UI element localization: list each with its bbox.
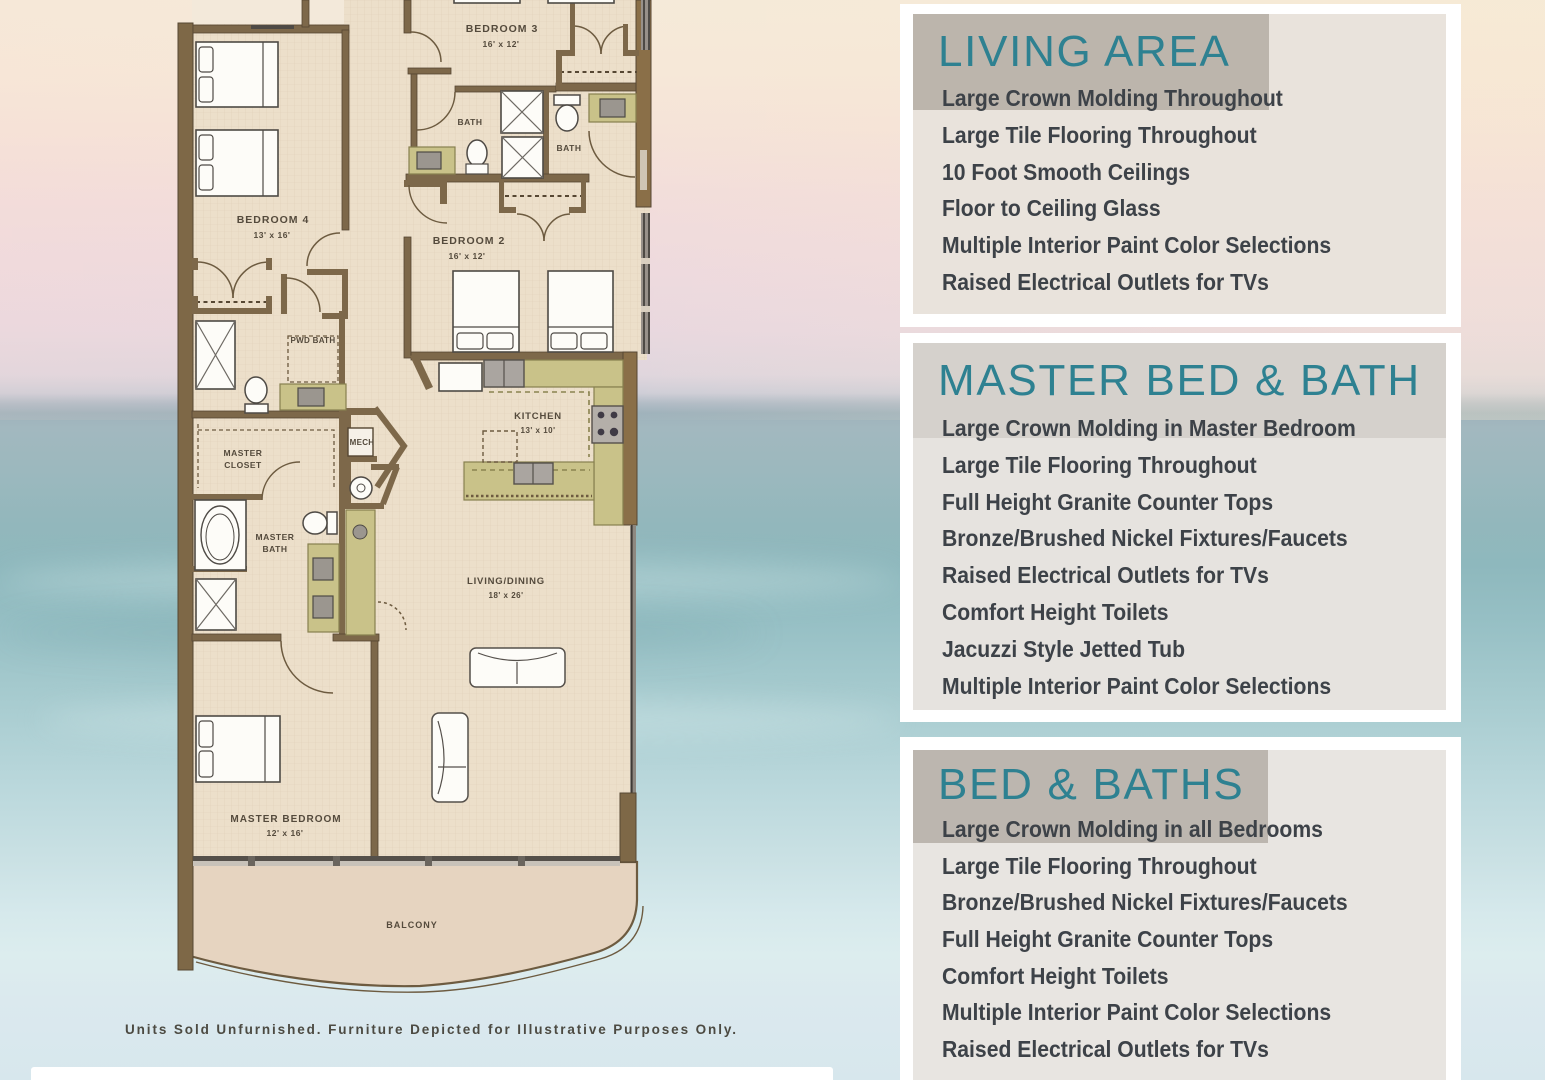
svg-text:18' x 26': 18' x 26' [489,591,524,600]
svg-text:LIVING/DINING: LIVING/DINING [467,576,545,587]
svg-text:13' x 16': 13' x 16' [254,230,291,240]
svg-text:13' x 10': 13' x 10' [521,426,556,435]
svg-text:MASTER BEDROOM: MASTER BEDROOM [230,814,341,825]
svg-text:MECH: MECH [350,438,375,447]
svg-text:16' x 12': 16' x 12' [449,251,486,261]
svg-text:BATH: BATH [557,143,582,153]
svg-text:BALCONY: BALCONY [386,920,438,930]
svg-text:BEDROOM 2: BEDROOM 2 [433,235,506,247]
svg-text:KITCHEN: KITCHEN [514,411,562,422]
svg-text:MASTER: MASTER [256,532,295,542]
svg-text:BEDROOM 3: BEDROOM 3 [466,23,539,35]
svg-text:BATH: BATH [263,544,288,554]
svg-text:BEDROOM 4: BEDROOM 4 [237,214,310,226]
svg-text:BATH: BATH [458,117,483,127]
svg-text:CLOSET: CLOSET [224,460,262,470]
svg-text:PWD BATH: PWD BATH [291,336,336,345]
svg-text:MASTER: MASTER [224,448,263,458]
svg-text:12' x 16': 12' x 16' [267,828,304,838]
svg-text:16' x 12': 16' x 12' [483,39,520,49]
